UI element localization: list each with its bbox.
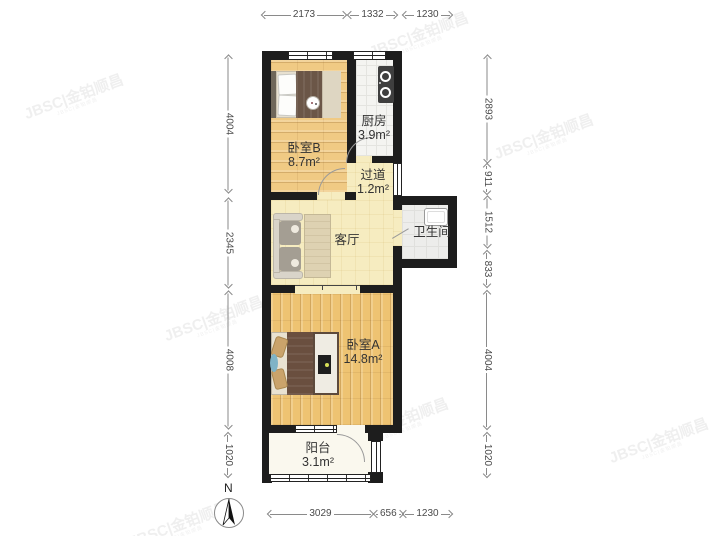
wall-bedroomb-bottom-b — [345, 192, 356, 200]
dim-arrow-right-icon — [224, 185, 232, 193]
wall-bathroom-bottom — [393, 259, 457, 268]
sofa-cushion — [279, 247, 301, 271]
sofa-cushion — [279, 221, 301, 245]
bedroom-a-bed — [271, 332, 339, 395]
balcony-door-opening — [337, 425, 365, 433]
dimension-left-1: 4004 — [223, 56, 235, 193]
watermark: JBSC|金铂顺昌JBSC|金铂顺昌 — [607, 416, 712, 471]
balcony-right-window — [371, 441, 381, 473]
bedroom-b-bed — [271, 71, 341, 118]
compass-north-label: N — [224, 481, 233, 495]
dim-arrow-left-icon — [224, 54, 232, 62]
dim-arrow-left-icon — [483, 290, 491, 298]
floor-plan: JBSC|金铂顺昌JBSC|金铂顺昌 JBSC|金铂顺昌JBSC|金铂顺昌 JB… — [0, 0, 712, 536]
sofa-pillow — [291, 225, 299, 233]
dim-arrow-left-icon — [267, 510, 275, 518]
blanket — [322, 71, 341, 118]
wall-right-upper — [393, 51, 402, 163]
bathtub — [424, 208, 448, 226]
dimension-top-1: 2173 — [262, 9, 346, 21]
watermark: JBSC|金铂顺昌JBSC|金铂顺昌 — [22, 72, 127, 127]
dim-arrow-right-icon — [445, 510, 453, 518]
dim-arrow-right-icon — [224, 421, 232, 429]
dim-arrow-left-icon — [224, 197, 232, 205]
pillow — [277, 74, 297, 96]
room-label-hallway: 过道1.2m² — [357, 168, 389, 196]
wall-balcony-corner-tr — [368, 433, 383, 441]
burner — [380, 71, 391, 82]
dim-arrow-left-icon — [483, 195, 491, 203]
pillow — [277, 95, 297, 117]
dimension-bottom-3: 1230 — [403, 508, 452, 520]
dim-arrow-right-icon — [483, 422, 491, 430]
opening-tick — [322, 286, 323, 290]
dimension-bottom-1: 3029 — [268, 508, 373, 520]
dim-arrow-left-icon — [402, 510, 410, 518]
room-label-bedroom-a: 卧室A14.8m² — [344, 338, 383, 366]
room-label-bedroom-b: 卧室B8.7m² — [287, 141, 320, 169]
wall-bathroom-left-b — [393, 246, 402, 268]
living-bedroom-a-opening — [295, 285, 360, 294]
dimension-left-4: 1020 — [222, 433, 234, 477]
dim-arrow-right-icon — [224, 280, 232, 288]
dim-arrow-left-icon — [224, 290, 232, 298]
dimension-right-4: 833 — [481, 251, 493, 287]
wall-right-lower — [393, 268, 402, 433]
kitchen-window — [353, 51, 386, 60]
dimension-left-2: 2345 — [223, 199, 235, 288]
bathroom-door-opening — [393, 210, 402, 246]
watermark: JBSC|金铂顺昌JBSC|金铂顺昌 — [492, 112, 597, 167]
side-table — [304, 214, 331, 278]
pillow-blue — [270, 354, 278, 372]
sofa-pillow — [291, 259, 299, 267]
living-room-sofa — [273, 213, 331, 279]
bedroom-b-window — [288, 51, 333, 60]
dim-arrow-left-icon — [402, 11, 410, 19]
hallway-window — [393, 163, 402, 196]
dim-arrow-left-icon — [483, 250, 491, 258]
dimension-right-5: 4004 — [481, 291, 493, 429]
dim-arrow-left-icon — [224, 432, 232, 440]
dim-arrow-right-icon — [445, 11, 453, 19]
bedroom-a-balcony-window — [295, 425, 337, 433]
balcony-bottom-window — [270, 474, 371, 482]
dim-arrow-right-icon — [483, 470, 491, 478]
wall-bathroom-left-a — [393, 196, 402, 210]
dim-arrow-left-icon — [347, 11, 355, 19]
compass-icon — [212, 494, 246, 530]
dimension-right-1: 2893 — [482, 56, 494, 163]
wardrobe — [313, 332, 339, 395]
bedroom-b-fan — [306, 96, 320, 110]
tv-box — [318, 355, 331, 374]
dimension-right-3: 1512 — [482, 197, 494, 248]
kitchen-stove — [378, 66, 394, 103]
dimension-bottom-2: 656 — [374, 508, 401, 520]
opening-tick — [356, 286, 357, 290]
burner — [380, 87, 391, 98]
duvet — [296, 71, 322, 118]
room-label-bathroom: 卫生间 — [413, 225, 451, 239]
room-label-kitchen: 厨房3.9m² — [358, 114, 390, 142]
dimension-right-2: 911 — [481, 164, 493, 194]
dimension-right-6: 1020 — [481, 433, 493, 477]
room-label-balcony: 阳台3.1m² — [302, 441, 334, 469]
dim-arrow-right-icon — [483, 280, 491, 288]
room-label-living-room: 客厅 — [334, 233, 359, 247]
dimension-left-3: 4008 — [223, 292, 235, 429]
dim-arrow-right-icon — [483, 240, 491, 248]
wall-left — [262, 51, 271, 433]
dim-arrow-right-icon — [390, 11, 398, 19]
dim-arrow-left-icon — [483, 54, 491, 62]
dim-arrow-left-icon — [261, 11, 269, 19]
duvet — [287, 332, 313, 395]
dim-arrow-right-icon — [224, 470, 232, 478]
dim-arrow-left-icon — [483, 432, 491, 440]
wall-bedroomb-bottom-a — [262, 192, 317, 200]
dimension-top-2: 1332 — [348, 9, 397, 21]
watermark: JBSC|金铂顺昌JBSC|金铂顺昌 — [162, 294, 267, 349]
dimension-top-3: 1230 — [403, 9, 452, 21]
